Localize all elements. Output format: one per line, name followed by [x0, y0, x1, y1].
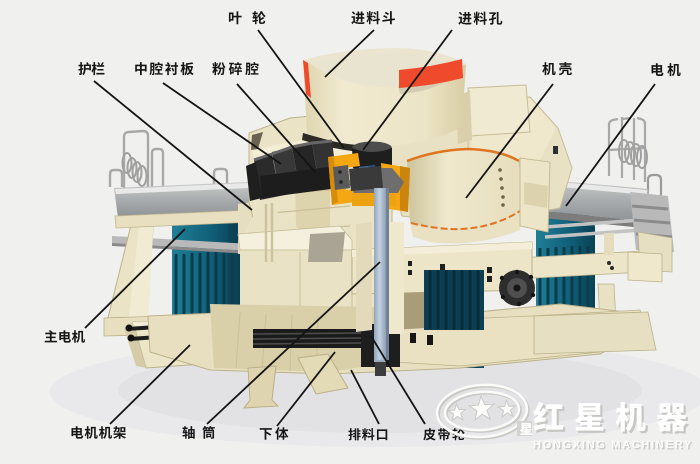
svg-text:HONGXING MACHINERY: HONGXING MACHINERY [533, 439, 693, 451]
